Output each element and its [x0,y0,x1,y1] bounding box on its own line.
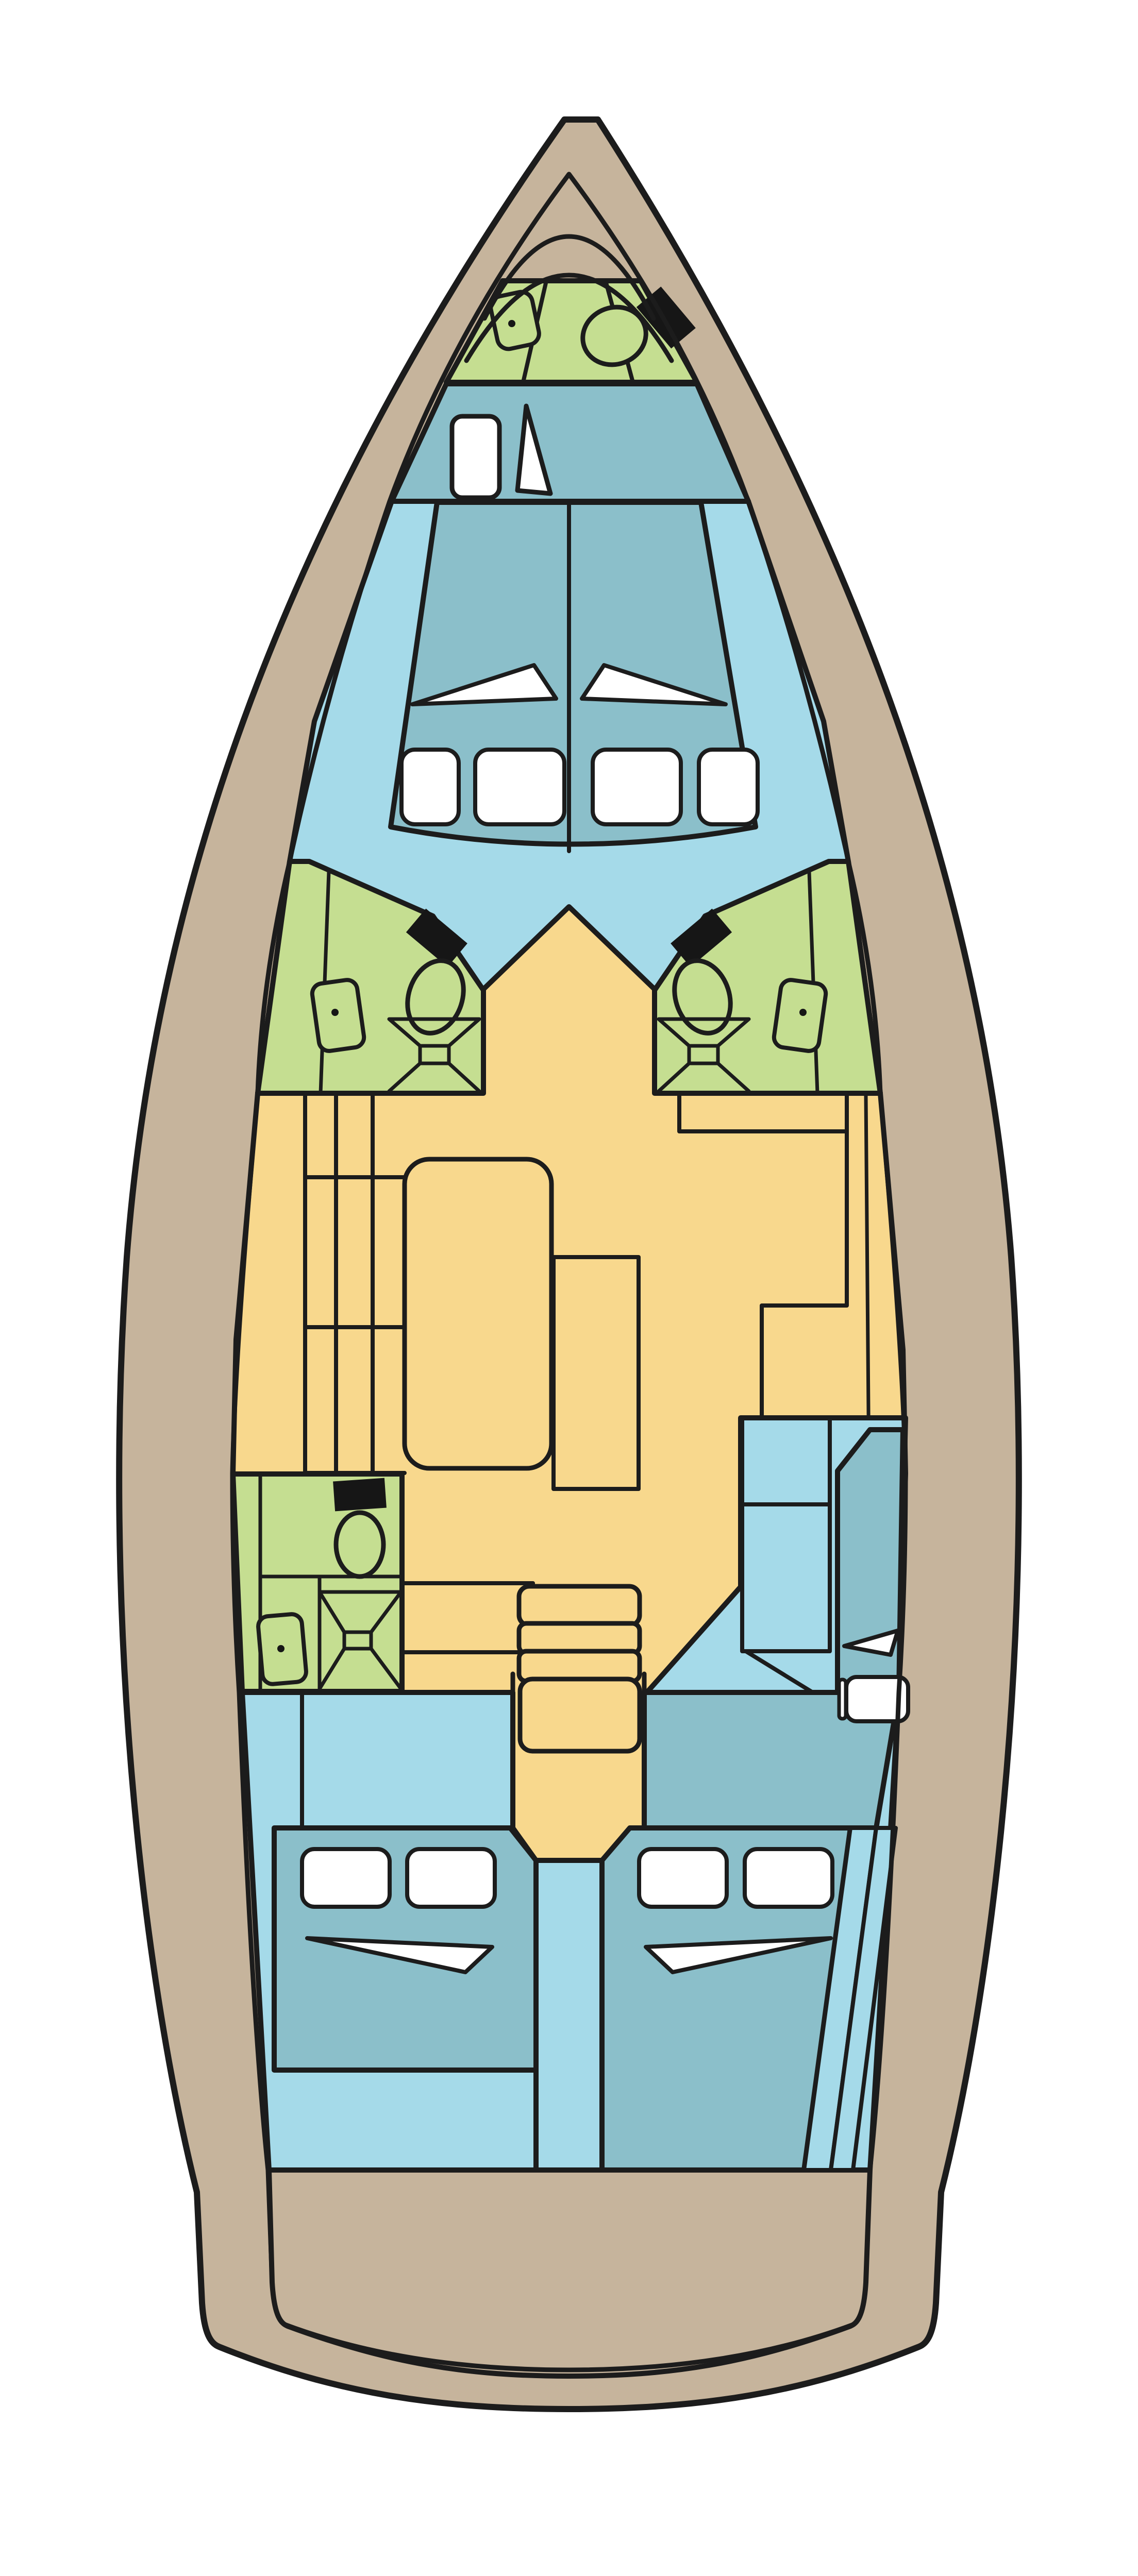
yacht-deck-plan [0,0,1138,2576]
port-aft-pillow-1 [302,1849,390,1907]
port-aft-pillow-2 [407,1849,495,1907]
forward-cabin-door [452,416,499,498]
starboard-aft-pillow-1 [639,1849,727,1907]
port-head-sink [311,979,365,1053]
port-head-shower-drain [420,1046,449,1063]
boat-plan [119,120,1019,2409]
v-berth-pillow-3 [593,750,681,824]
starboard-aft-pillow-2 [745,1849,832,1907]
aft-head-shower-drain [344,1632,371,1649]
v-berth-pillow-1 [401,750,459,824]
aft-head-sink-drain [277,1645,284,1652]
companionway-step-2 [519,1651,640,1681]
saloon-table [405,1159,551,1468]
plan-canvas [0,0,1138,2576]
saloon-bench [399,1583,533,1652]
forward-head-sink-drain [508,320,515,327]
companionway-passage [536,1860,602,2170]
companionway-step-3 [519,1623,640,1653]
aft-head-toilet-tank [333,1478,387,1512]
forward-vestibule-floor [392,384,748,501]
starboard-head-sink-drain [799,1009,807,1016]
aft-head-toilet-bowl [336,1513,383,1577]
companionway-step-1 [520,1679,640,1751]
starboard-head-sink [773,979,827,1053]
companionway-step-4 [519,1586,640,1625]
v-berth-pillow-2 [475,750,564,824]
v-berth-pillow-4 [699,750,758,824]
quarter-berth-pillow-edge [839,1680,846,1719]
port-head-sink-drain [331,1009,339,1016]
saloon-table-leaf [554,1257,639,1489]
starboard-head-shower-drain [689,1046,718,1063]
